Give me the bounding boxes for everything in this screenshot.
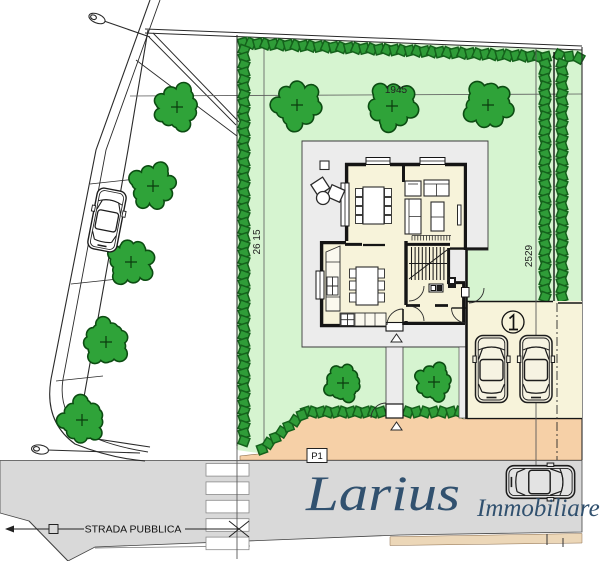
svg-text:Larius: Larius — [305, 465, 460, 521]
svg-text:Immobiliare: Immobiliare — [476, 495, 600, 522]
svg-text:1945: 1945 — [385, 85, 408, 96]
svg-text:2529: 2529 — [524, 244, 535, 267]
svg-text:P1: P1 — [311, 451, 323, 462]
svg-text:26 15: 26 15 — [252, 229, 263, 254]
svg-text:STRADA PUBBLICA: STRADA PUBBLICA — [85, 524, 182, 536]
